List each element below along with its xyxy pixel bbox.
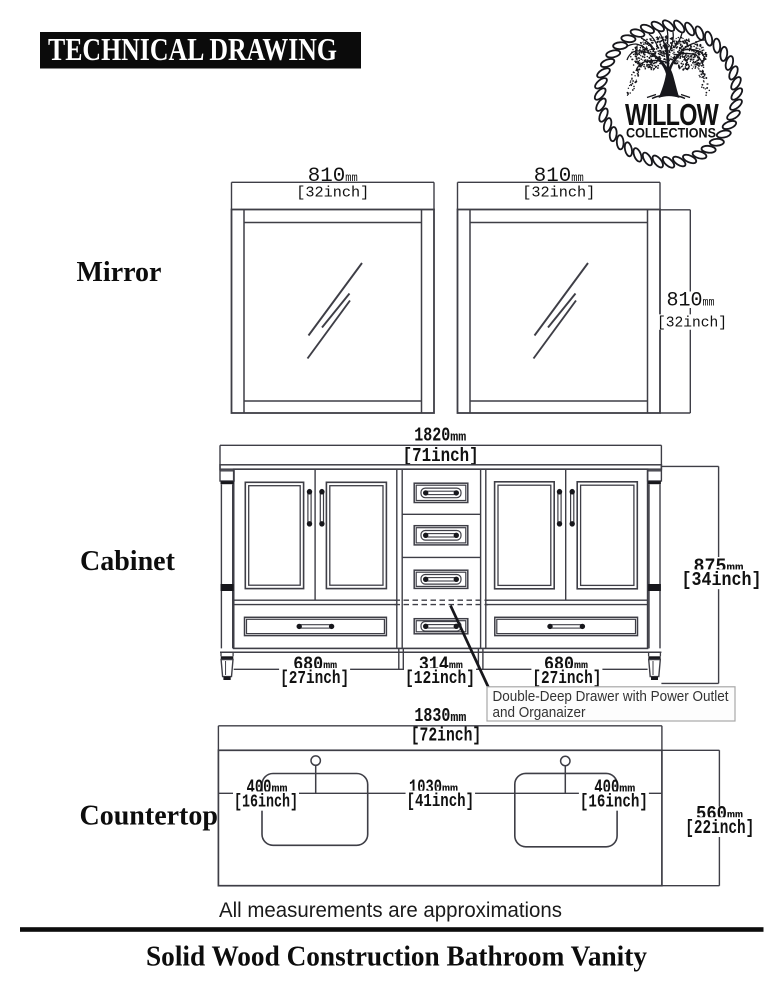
- svg-text:1820mm: 1820mm: [414, 425, 466, 447]
- svg-text:[41inch]: [41inch]: [407, 791, 475, 812]
- svg-text:Cabinet: Cabinet: [80, 546, 176, 577]
- svg-text:All measurements are approxima: All measurements are approximations: [219, 898, 562, 922]
- svg-text:[27inch]: [27inch]: [532, 668, 601, 689]
- svg-text:TECHNICAL DRAWING: TECHNICAL DRAWING: [48, 31, 337, 67]
- svg-text:[16inch]: [16inch]: [234, 792, 298, 813]
- svg-text:Double-Deep Drawer with Power: Double-Deep Drawer with Power Outlet: [493, 689, 729, 705]
- svg-text:Countertop: Countertop: [80, 801, 218, 832]
- svg-text:and Organaizer: and Organaizer: [493, 705, 586, 721]
- svg-text:[32inch]: [32inch]: [657, 316, 727, 332]
- svg-text:COLLECTIONS: COLLECTIONS: [626, 126, 716, 142]
- svg-text:[12inch]: [12inch]: [405, 668, 475, 689]
- svg-text:[22inch]: [22inch]: [685, 817, 754, 839]
- svg-text:Solid Wood Construction Bathro: Solid Wood Construction Bathroom Vanity: [146, 942, 647, 973]
- svg-text:[72inch]: [72inch]: [411, 724, 482, 746]
- svg-text:[32inch]: [32inch]: [296, 185, 369, 201]
- svg-text:[71inch]: [71inch]: [403, 445, 479, 467]
- svg-text:[32inch]: [32inch]: [522, 185, 595, 201]
- svg-text:Mirror: Mirror: [77, 257, 162, 288]
- svg-text:[27inch]: [27inch]: [280, 668, 349, 689]
- svg-text:[16inch]: [16inch]: [580, 792, 648, 813]
- svg-text:[34inch]: [34inch]: [682, 569, 762, 591]
